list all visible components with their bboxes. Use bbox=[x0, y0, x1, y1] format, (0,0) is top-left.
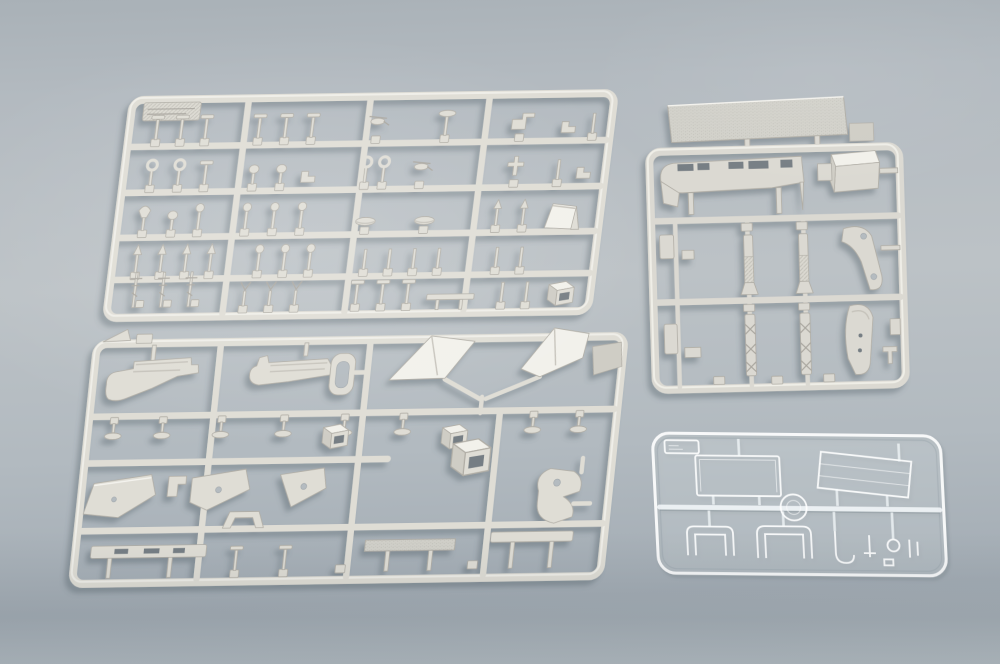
sprue-a-label-tab bbox=[142, 102, 201, 121]
superstructure-piece-2 bbox=[247, 342, 370, 396]
sprue-small-fittings bbox=[105, 91, 616, 318]
bow-wedge bbox=[83, 475, 158, 519]
curved-davit bbox=[841, 226, 901, 291]
plain-deck-strip bbox=[488, 531, 574, 569]
lattice-mast-2 bbox=[799, 303, 812, 375]
textured-deck-strip bbox=[362, 539, 455, 572]
sprue-superstructure-parts bbox=[71, 322, 627, 584]
superstructure-piece-1 bbox=[105, 344, 202, 400]
slotted-deck-strip bbox=[88, 545, 207, 579]
angled-bracket-part bbox=[534, 458, 595, 524]
lattice-mast-1 bbox=[744, 304, 757, 376]
hull-side-piece bbox=[660, 156, 805, 216]
boat-hull bbox=[845, 304, 875, 374]
triangular-panel-1 bbox=[189, 469, 252, 510]
triangular-panel-2 bbox=[277, 468, 328, 507]
photo-canvas bbox=[0, 0, 1000, 664]
sprue-clear-parts bbox=[652, 433, 947, 576]
sprue-deck-hull-parts bbox=[646, 95, 906, 390]
box-structure bbox=[817, 150, 898, 193]
sprues-photo bbox=[0, 0, 1000, 664]
